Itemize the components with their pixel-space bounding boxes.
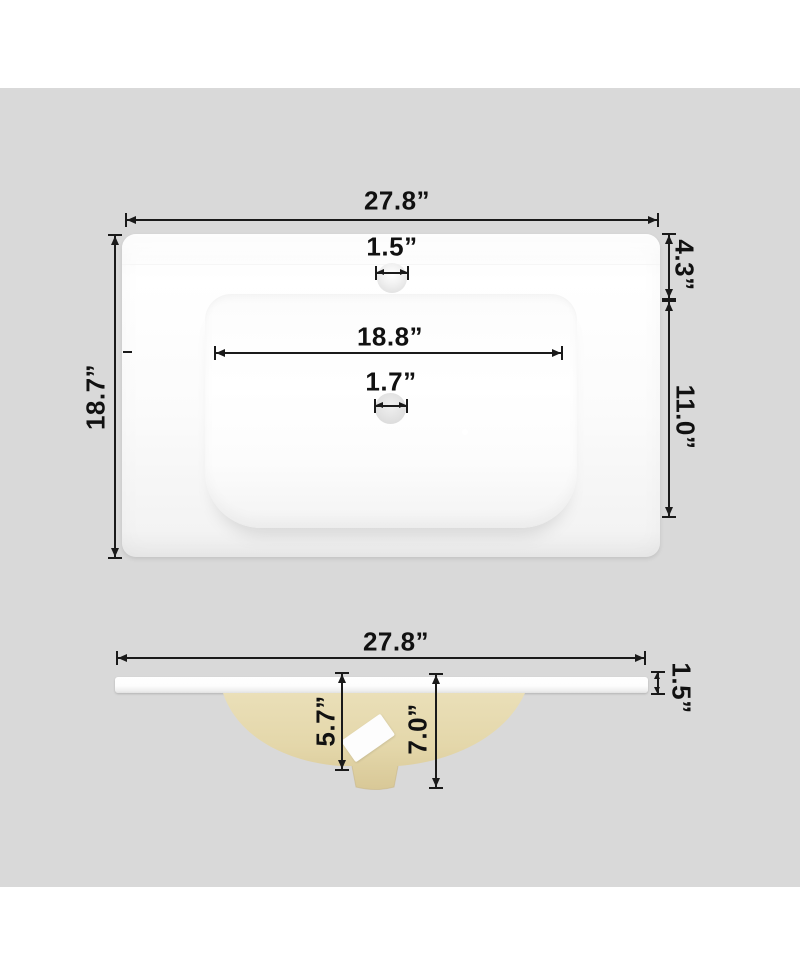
dim-line-overall-height	[435, 674, 437, 788]
dim-label-drain-hole: 1.7”	[365, 367, 416, 398]
left-edge-reference-tick	[123, 351, 132, 353]
dim-label-faucet-hole: 1.5”	[366, 232, 417, 263]
dim-label-countertop-thickness: 1.5”	[666, 662, 697, 713]
dim-label-back-edge-to-basin: 4.3”	[669, 239, 700, 290]
dim-line-countertop-thickness	[657, 672, 659, 694]
dim-label-overall-height: 7.0”	[403, 703, 434, 754]
deck-highlight-dot	[462, 429, 468, 435]
dim-line-faucet-hole	[376, 272, 408, 274]
dim-label-basin-depth: 5.7”	[311, 695, 342, 746]
dim-label-basin-front-depth: 11.0”	[670, 385, 701, 450]
product-image: 27.8” 1.5” 18.8” 1.7” 18.7” 4.3” 11.0” 2	[0, 0, 800, 977]
dim-label-overall-width-top: 27.8”	[364, 186, 430, 217]
dim-label-basin-width: 18.8”	[357, 322, 423, 353]
dim-line-drain-hole	[375, 405, 407, 407]
faucet-hole	[377, 263, 407, 293]
dim-label-overall-width-side: 27.8”	[363, 627, 429, 658]
dim-line-overall-width-top	[126, 219, 658, 221]
dim-label-overall-depth: 18.7”	[81, 364, 112, 430]
countertop-side-profile	[115, 677, 648, 693]
drain-hole	[375, 393, 406, 424]
dim-line-overall-depth	[114, 235, 116, 558]
